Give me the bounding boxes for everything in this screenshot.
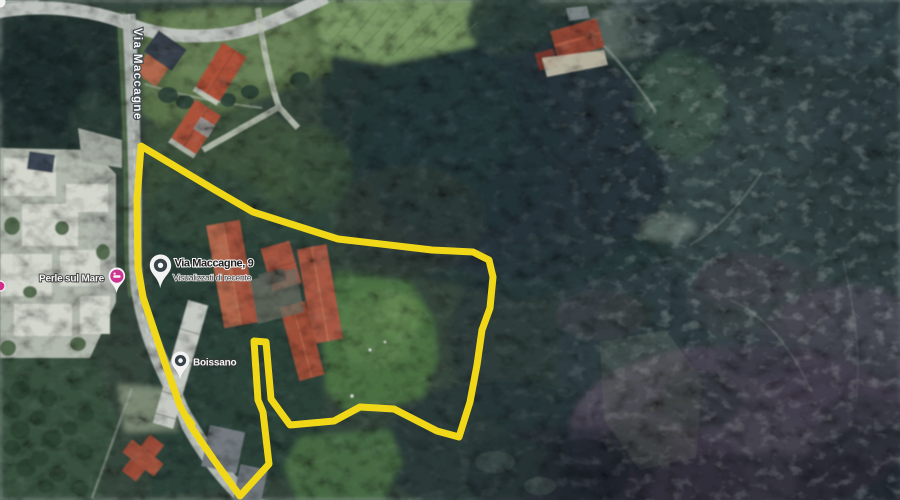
svg-text:Boissano: Boissano [193,358,237,369]
svg-text:Via Maccagne, 9: Via Maccagne, 9 [175,258,254,270]
svg-text:Via Maccagne: Via Maccagne [131,28,143,121]
svg-text:Perle sul Mare: Perle sul Mare [39,274,105,285]
svg-text:Visualizzati di recente: Visualizzati di recente [173,273,252,283]
